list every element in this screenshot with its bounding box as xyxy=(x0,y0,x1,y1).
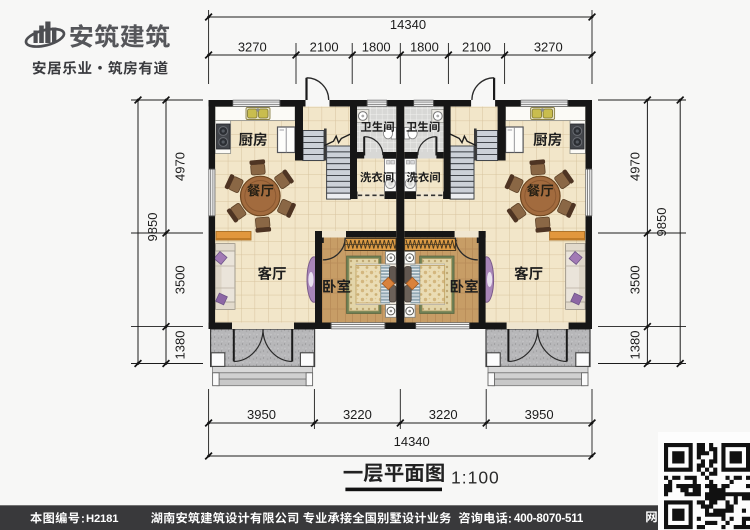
svg-text:4970: 4970 xyxy=(627,152,642,181)
svg-text:14340: 14340 xyxy=(390,17,426,32)
svg-text:9850: 9850 xyxy=(145,213,160,242)
svg-text:2100: 2100 xyxy=(462,40,491,55)
svg-text:4970: 4970 xyxy=(172,152,187,181)
svg-text:3220: 3220 xyxy=(343,407,372,422)
svg-text:3220: 3220 xyxy=(429,407,458,422)
svg-text:3950: 3950 xyxy=(525,407,554,422)
svg-text::: : xyxy=(81,513,85,525)
svg-text:3500: 3500 xyxy=(627,265,642,294)
svg-text:14340: 14340 xyxy=(394,434,430,449)
svg-text:3950: 3950 xyxy=(247,407,276,422)
svg-text:9850: 9850 xyxy=(654,208,669,237)
svg-text:1800: 1800 xyxy=(410,40,439,55)
svg-text::: : xyxy=(508,513,512,525)
svg-text:1380: 1380 xyxy=(172,331,187,360)
svg-text:2100: 2100 xyxy=(310,40,339,55)
svg-text:1800: 1800 xyxy=(362,40,391,55)
svg-text:H2181: H2181 xyxy=(86,513,118,525)
svg-text:3270: 3270 xyxy=(534,40,563,55)
svg-text:1:100: 1:100 xyxy=(451,467,500,487)
svg-text:3270: 3270 xyxy=(238,40,267,55)
svg-text:1380: 1380 xyxy=(627,331,642,360)
svg-text:400-8070-511: 400-8070-511 xyxy=(514,512,584,525)
svg-text:3500: 3500 xyxy=(172,265,187,294)
